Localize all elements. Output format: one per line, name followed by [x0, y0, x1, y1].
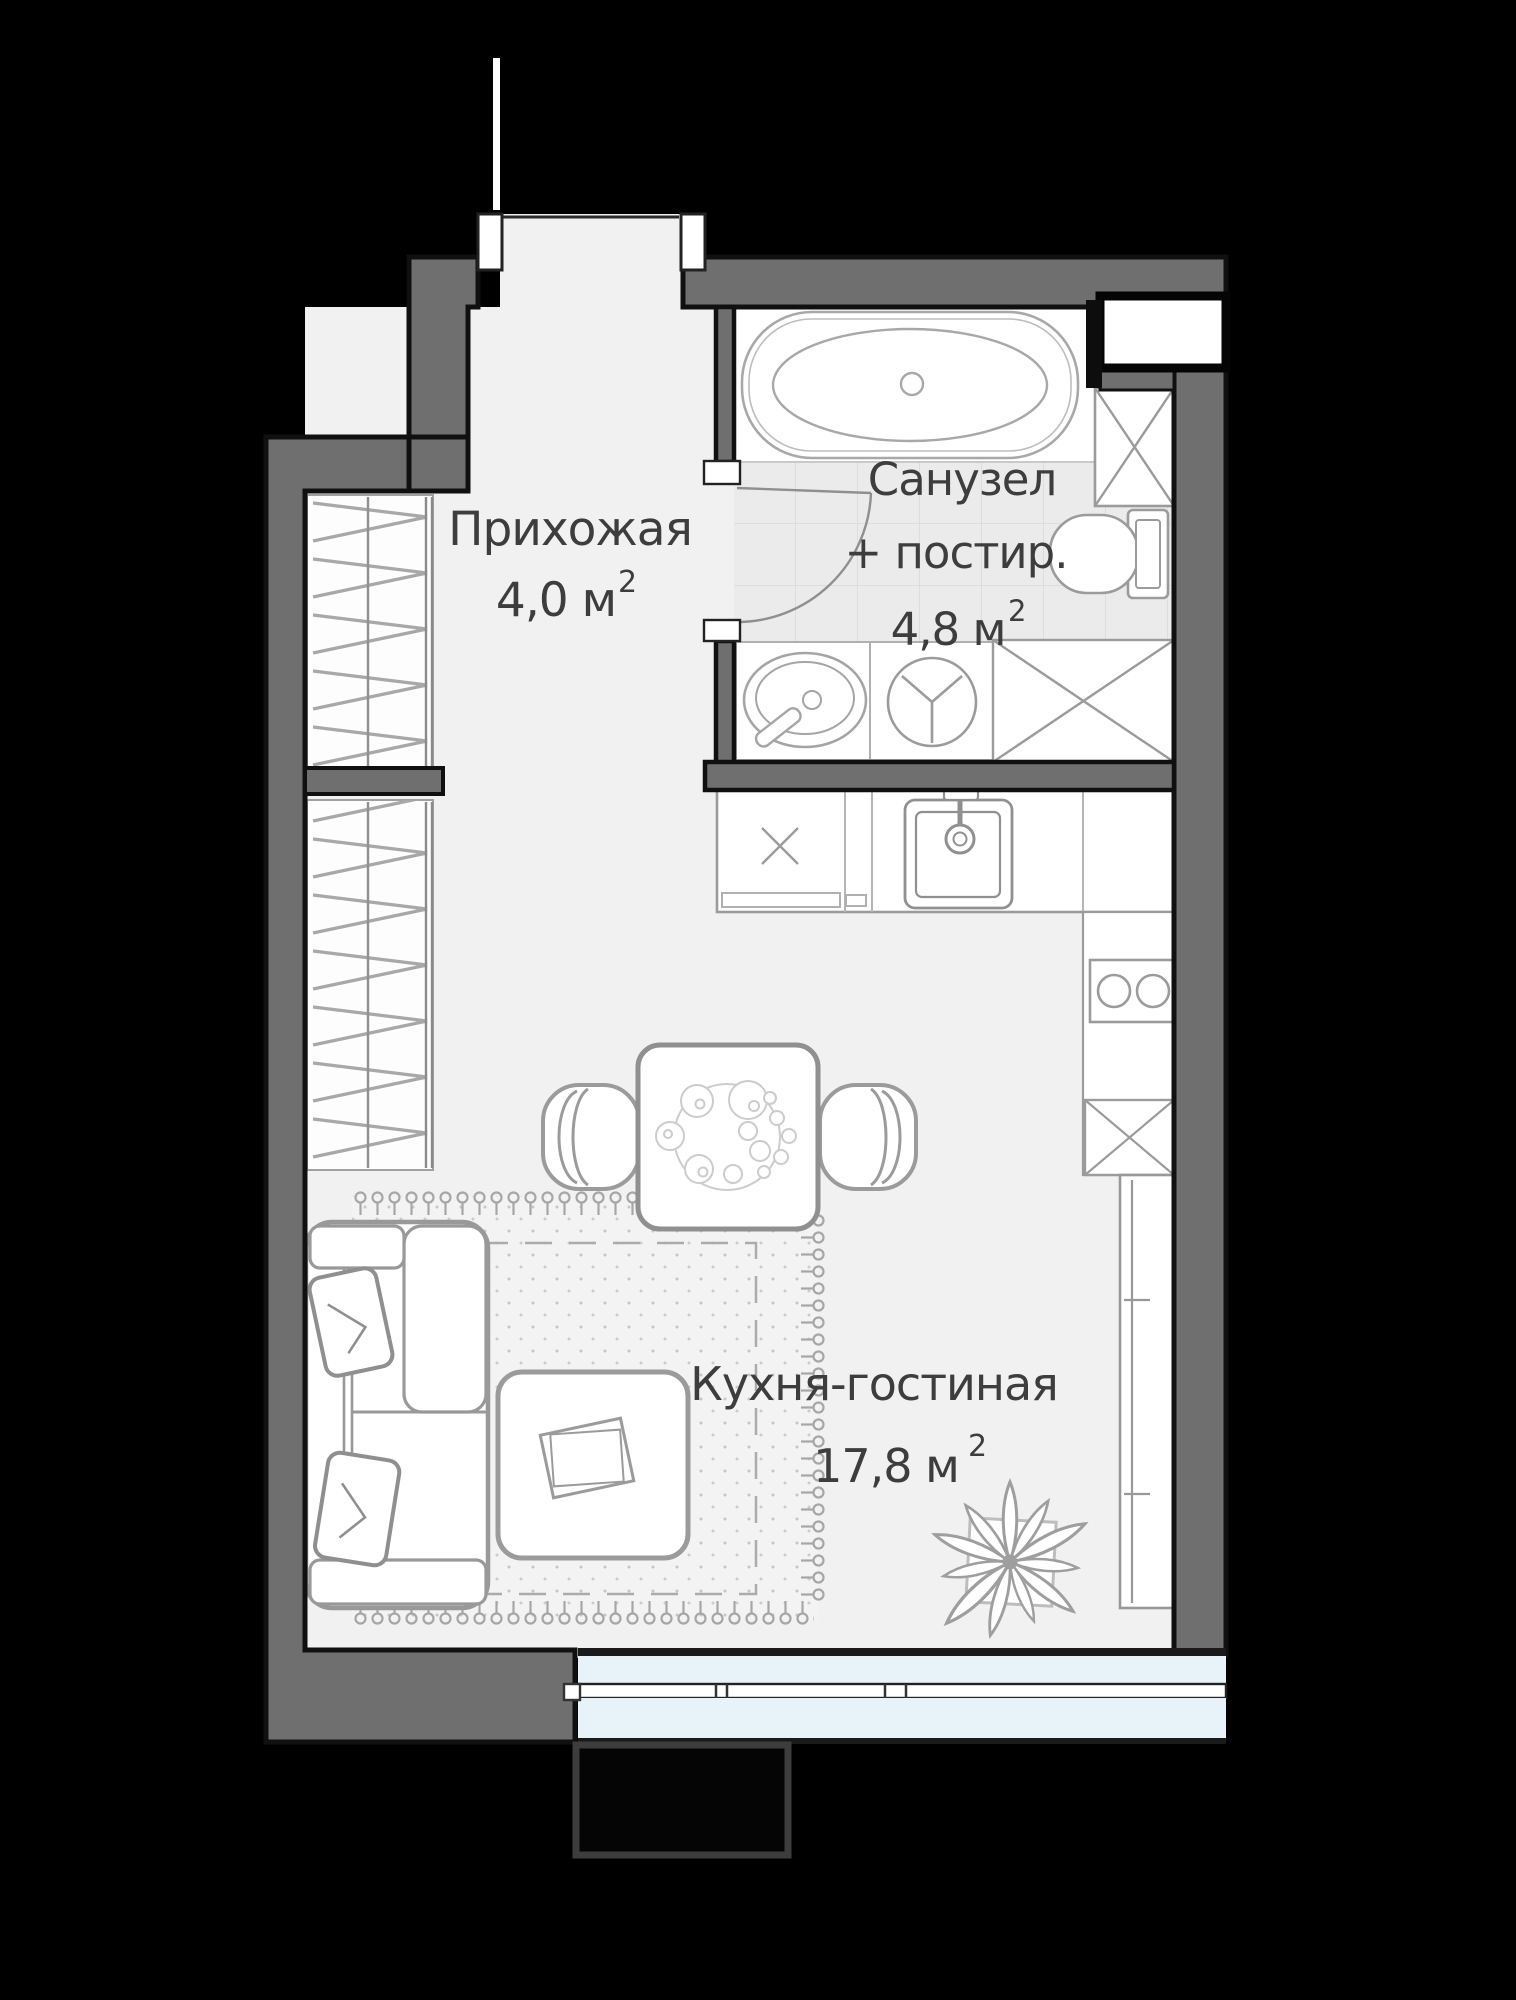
bath-jamb-top [704, 461, 740, 484]
coffee-table-icon [498, 1372, 688, 1558]
window-icon [564, 1648, 1226, 1744]
bath-jamb-bottom [704, 620, 740, 641]
sofa-icon [306, 1222, 488, 1608]
wardrobe-living-hatch [307, 800, 433, 1170]
wardrobe-hallway-hatch [307, 495, 433, 768]
duct-icon [1095, 388, 1174, 506]
pillow-icon-2 [313, 1451, 401, 1567]
wall-closet-stub [305, 768, 443, 794]
room-label-kitchen-living: Кухня-гостиная [690, 1357, 1058, 1411]
window-end-cap [564, 1684, 580, 1700]
floor-plan: Прихожая 4,0 м 2 Санузел + постир. 4,8 м… [0, 0, 1516, 2000]
niche-divider [1086, 300, 1102, 388]
chair-icon-right [820, 1085, 916, 1189]
fridge-icon [1085, 1100, 1174, 1175]
laundry-duct-icon [993, 640, 1174, 762]
balcony-icon [576, 1745, 788, 1855]
entrance-jamb-left [478, 214, 502, 270]
room-label-bathroom-1: Санузел [868, 453, 1056, 506]
stove-icon [1090, 960, 1174, 1022]
kitchen-sink-icon [905, 786, 1012, 908]
room-area-hallway: 4,0 м [496, 573, 616, 628]
wardrobe-icon [1120, 1175, 1174, 1608]
room-area-kitchen-living-sup: 2 [968, 1429, 986, 1464]
cabinet-front-small [846, 895, 866, 906]
room-area-bathroom: 4,8 м [891, 603, 1006, 656]
dining-table-icon [638, 1045, 818, 1229]
entrance-axis-line [493, 58, 500, 210]
chair-icon-left [543, 1085, 639, 1189]
hallway-closets [307, 495, 433, 1170]
toilet-icon [1050, 510, 1168, 598]
entrance-threshold-floor [500, 214, 681, 309]
cabinet-front [722, 893, 840, 907]
washing-machine-icon [888, 658, 976, 746]
bathtub-icon [742, 312, 1078, 458]
entrance-jamb-right [681, 214, 705, 270]
room-area-bathroom-sup: 2 [1008, 594, 1025, 628]
bathroom-sink-icon [744, 653, 866, 749]
room-label-bathroom-2: + постир. [844, 526, 1067, 579]
floor-plan-canvas: Прихожая 4,0 м 2 Санузел + постир. 4,8 м… [0, 0, 1516, 2000]
niche-shaft [1100, 296, 1226, 368]
room-area-kitchen-living: 17,8 м [813, 1439, 959, 1493]
room-area-hallway-sup: 2 [618, 565, 636, 600]
room-label-hallway: Прихожая [448, 502, 692, 557]
